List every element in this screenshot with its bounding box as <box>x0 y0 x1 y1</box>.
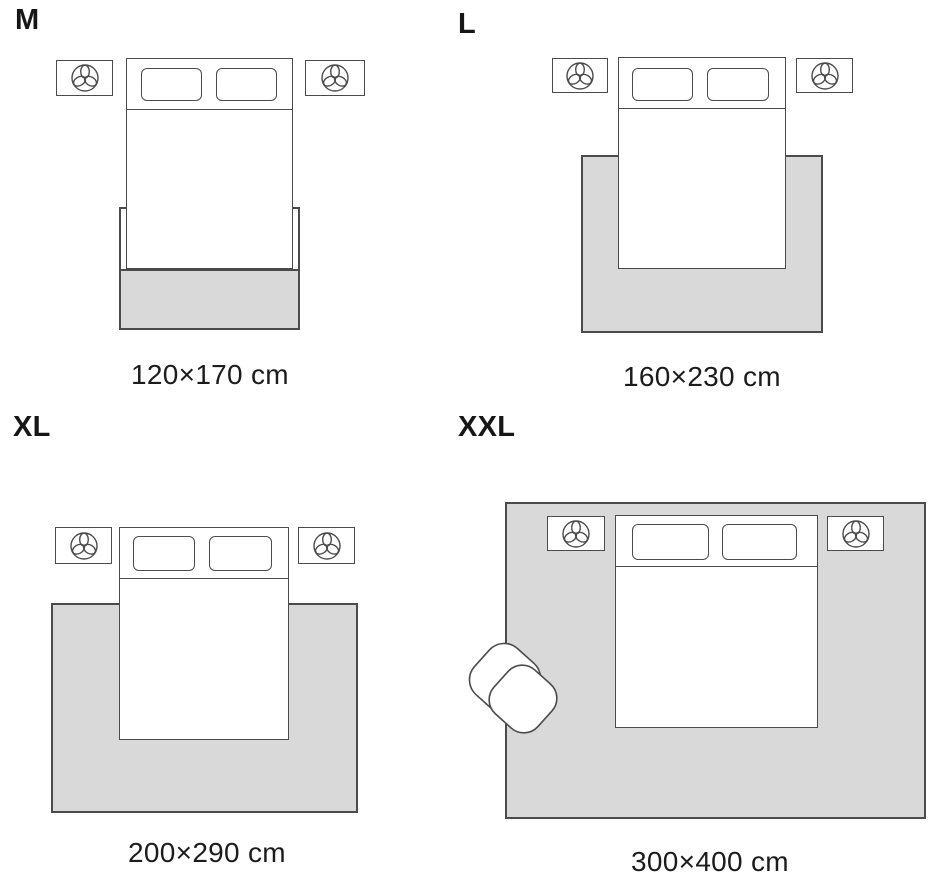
nightstand <box>796 58 853 93</box>
rug-size-guide: M 120×170 cm L <box>0 0 940 880</box>
plant-icon <box>565 61 595 91</box>
nightstand <box>56 60 113 96</box>
plant-icon <box>561 519 591 549</box>
pillow <box>722 524 797 560</box>
nightstand <box>827 516 884 551</box>
rug-visible-area <box>119 269 300 330</box>
dimension-caption: 160×230 cm <box>552 363 852 391</box>
bed <box>119 527 289 740</box>
nightstand <box>547 516 605 551</box>
nightstand <box>552 58 608 93</box>
pillow <box>209 536 272 571</box>
armchair-icon <box>452 628 572 750</box>
nightstand <box>55 527 112 564</box>
pillow <box>632 524 709 560</box>
plant-icon <box>841 519 871 549</box>
plant-icon <box>320 63 350 93</box>
pillow <box>216 68 277 101</box>
pillow <box>707 68 769 101</box>
bed <box>618 57 786 269</box>
plant-icon <box>312 531 342 561</box>
pillow <box>141 68 202 101</box>
dimension-caption: 200×290 cm <box>57 839 357 867</box>
size-label-xl: XL <box>13 413 51 442</box>
nightstand <box>305 60 365 96</box>
plant-icon <box>70 63 100 93</box>
dimension-caption: 300×400 cm <box>560 848 860 876</box>
size-label-m: M <box>15 6 39 35</box>
size-label-l: L <box>458 10 476 39</box>
bed <box>126 58 293 269</box>
plant-icon <box>69 531 99 561</box>
pillow <box>632 68 693 101</box>
size-label-xxl: XXL <box>458 413 515 442</box>
dimension-caption: 120×170 cm <box>60 361 360 389</box>
plant-icon <box>810 61 840 91</box>
pillow <box>133 536 195 571</box>
bed <box>615 515 818 728</box>
nightstand <box>298 527 355 564</box>
